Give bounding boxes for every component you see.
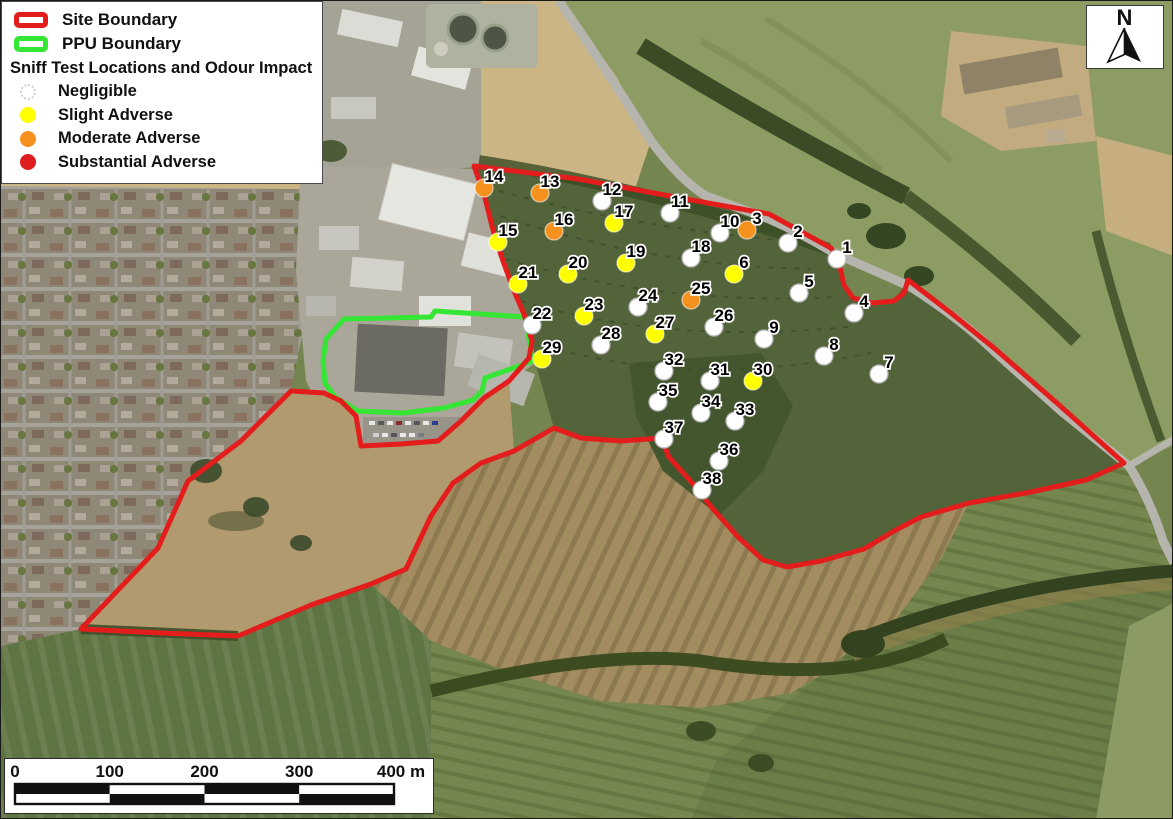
- sniff-point-11: 11: [661, 192, 689, 222]
- sniff-point-label: 25: [692, 279, 711, 298]
- sniff-point-label: 1: [842, 238, 851, 257]
- scale-tick-200: 200: [190, 762, 218, 781]
- sniff-point-label: 29: [543, 338, 562, 357]
- scale-tick-300: 300: [285, 762, 313, 781]
- sniff-point-label: 12: [603, 180, 622, 199]
- sniff-point-6: 6: [725, 253, 749, 283]
- site-boundary-swatch: [14, 12, 48, 28]
- scale-bar-graphic: 0 100 200 300 400 m: [5, 759, 432, 812]
- sniff-point-label: 34: [702, 392, 721, 411]
- sniff-point-label: 30: [754, 360, 773, 379]
- sniff-point-33: 33: [726, 400, 754, 430]
- sniff-point-label: 33: [736, 400, 755, 419]
- negligible-label: Negligible: [58, 82, 137, 101]
- legend-slight-adverse: Slight Adverse: [10, 104, 314, 128]
- sniff-point-29: 29: [533, 338, 561, 368]
- ppu-boundary-swatch: [14, 36, 48, 52]
- sniff-point-14: 14: [475, 167, 504, 197]
- legend-ppu-boundary: PPU Boundary: [10, 32, 314, 56]
- sniff-point-21: 21: [509, 263, 537, 293]
- scale-tick-0: 0: [10, 762, 19, 781]
- sniff-point-label: 6: [739, 253, 748, 272]
- sniff-point-5: 5: [790, 272, 814, 302]
- legend-moderate-adverse: Moderate Adverse: [10, 127, 314, 151]
- sniff-point-27: 27: [646, 313, 674, 343]
- site-boundary-label: Site Boundary: [62, 10, 177, 30]
- legend-substantial-adverse: Substantial Adverse: [10, 151, 314, 175]
- sniff-point-label: 3: [752, 209, 761, 228]
- sniff-point-34: 34: [692, 392, 721, 422]
- sniff-point-1: 1: [828, 238, 852, 268]
- sniff-point-2: 2: [779, 222, 803, 252]
- sniff-point-label: 22: [533, 304, 552, 323]
- sniff-point-label: 24: [639, 286, 658, 305]
- sniff-point-label: 4: [859, 292, 869, 311]
- sniff-point-38: 38: [693, 469, 721, 499]
- sniff-point-10: 10: [711, 212, 739, 242]
- sniff-point-label: 5: [804, 272, 813, 291]
- sniff-point-26: 26: [705, 306, 733, 336]
- scale-end-label: 400 m: [377, 762, 425, 781]
- legend-negligible: Negligible: [10, 80, 314, 104]
- sniff-point-label: 31: [711, 360, 730, 379]
- sniff-point-label: 37: [665, 418, 684, 437]
- sniff-point-label: 35: [659, 381, 678, 400]
- sniff-point-label: 27: [656, 313, 675, 332]
- sniff-point-3: 3: [738, 209, 762, 239]
- sniff-point-label: 32: [665, 350, 684, 369]
- sniff-point-label: 18: [692, 237, 711, 256]
- sniff-point-label: 13: [541, 172, 560, 191]
- sniff-point-35: 35: [649, 381, 677, 411]
- sniff-point-25: 25: [682, 279, 710, 309]
- sniff-point-label: 16: [555, 210, 574, 229]
- sniff-point-28: 28: [592, 324, 620, 354]
- slight-adverse-dot-icon: [20, 107, 36, 123]
- sniff-point-31: 31: [701, 360, 729, 390]
- map-legend: Site Boundary PPU Boundary Sniff Test Lo…: [1, 1, 323, 184]
- sniff-point-18: 18: [682, 237, 710, 267]
- negligible-dot-icon: [20, 84, 36, 100]
- sniff-point-label: 23: [585, 295, 604, 314]
- moderate-adverse-dot-icon: [20, 131, 36, 147]
- sniff-point-label: 9: [769, 318, 778, 337]
- sniff-point-label: 14: [485, 167, 504, 186]
- sniff-point-label: 28: [602, 324, 621, 343]
- substantial-adverse-dot-icon: [20, 154, 36, 170]
- north-arrow-icon: N: [1087, 6, 1162, 67]
- sniff-point-20: 20: [559, 253, 587, 283]
- sniff-point-37: 37: [655, 418, 683, 448]
- legend-site-boundary: Site Boundary: [10, 8, 314, 32]
- sniff-point-15: 15: [489, 221, 517, 251]
- sniff-point-label: 7: [884, 353, 893, 372]
- moderate-adverse-label: Moderate Adverse: [58, 129, 200, 148]
- slight-adverse-label: Slight Adverse: [58, 106, 173, 125]
- scale-bar: 0 100 200 300 400 m: [4, 758, 434, 814]
- scale-tick-100: 100: [96, 762, 124, 781]
- scale-bar-blocks: [15, 784, 394, 804]
- sniff-point-30: 30: [744, 360, 772, 390]
- sniff-point-7: 7: [870, 353, 894, 383]
- sniff-point-label: 38: [703, 469, 722, 488]
- sniff-point-22: 22: [523, 304, 551, 334]
- sniff-point-label: 8: [829, 335, 838, 354]
- north-label: N: [1117, 6, 1133, 30]
- sniff-point-label: 10: [721, 212, 740, 231]
- sniff-point-19: 19: [617, 242, 645, 272]
- sniff-point-label: 36: [720, 440, 739, 459]
- sniff-point-label: 21: [519, 263, 538, 282]
- sniff-point-4: 4: [845, 292, 869, 322]
- north-arrow-box: N: [1086, 5, 1164, 69]
- sniff-point-label: 17: [615, 202, 634, 221]
- ppu-boundary-label: PPU Boundary: [62, 34, 181, 54]
- sniff-point-label: 15: [499, 221, 518, 240]
- sniff-point-label: 26: [715, 306, 734, 325]
- aerial-odour-survey-map: 1234567891011121314151617181920212223242…: [0, 0, 1173, 819]
- sniff-point-label: 11: [671, 192, 689, 211]
- sniff-point-label: 19: [627, 242, 646, 261]
- sniff-point-36: 36: [710, 440, 738, 470]
- sniff-point-23: 23: [575, 295, 603, 325]
- sniff-point-label: 2: [793, 222, 802, 241]
- sniff-point-label: 20: [569, 253, 588, 272]
- substantial-adverse-label: Substantial Adverse: [58, 153, 216, 172]
- legend-heading: Sniff Test Locations and Odour Impact: [10, 59, 314, 78]
- sniff-point-16: 16: [545, 210, 573, 240]
- sniff-point-9: 9: [755, 318, 779, 348]
- sniff-point-24: 24: [629, 286, 658, 316]
- sniff-point-32: 32: [655, 350, 683, 380]
- sniff-point-8: 8: [815, 335, 839, 365]
- sniff-point-13: 13: [531, 172, 559, 202]
